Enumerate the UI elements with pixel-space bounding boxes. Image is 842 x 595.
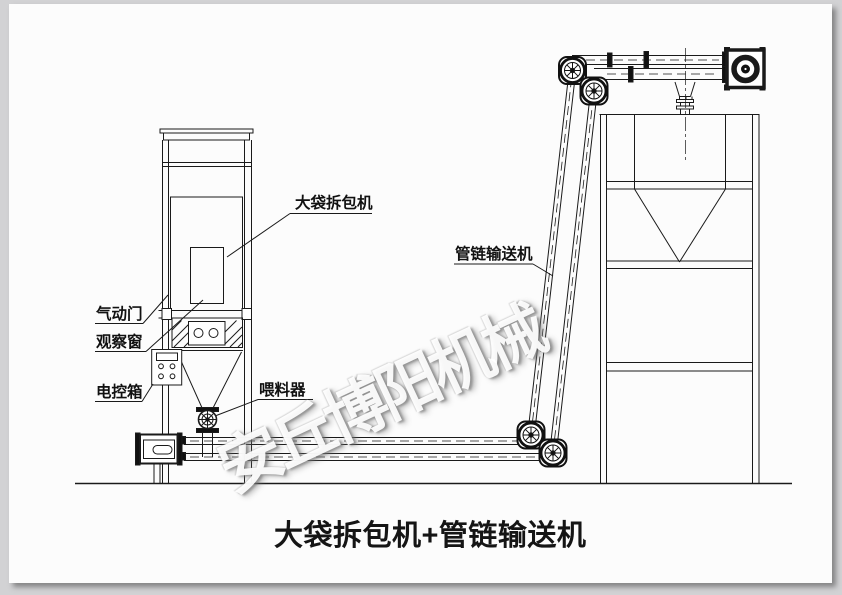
label-observation-window: 观察窗 xyxy=(96,334,143,351)
figure-caption: 大袋拆包机+管链输送机 xyxy=(274,512,574,554)
discharge-chute xyxy=(675,48,695,162)
corner-wheel xyxy=(581,78,608,105)
drive-unit xyxy=(725,48,766,91)
tensioner-unit xyxy=(136,433,186,465)
feeder-valve xyxy=(197,408,219,433)
app-background: 大袋拆包机 气动门 观察窗 电控箱 喂料器 管链输送机 安丘博阳机械 大袋拆包机… xyxy=(0,0,842,595)
control-box xyxy=(152,350,182,386)
silo-frame-figure xyxy=(600,115,760,484)
bag-unpacker-figure xyxy=(136,129,254,483)
label-pneumatic-door: 气动门 xyxy=(96,306,143,323)
label-feeder: 喂料器 xyxy=(259,382,306,399)
diagram-canvas xyxy=(0,0,842,595)
label-bag-breaker: 大袋拆包机 xyxy=(295,195,373,212)
label-control-box: 电控箱 xyxy=(96,384,143,401)
label-pipe-chain-conveyor: 管链输送机 xyxy=(455,246,533,263)
corner-wheel xyxy=(540,440,567,467)
